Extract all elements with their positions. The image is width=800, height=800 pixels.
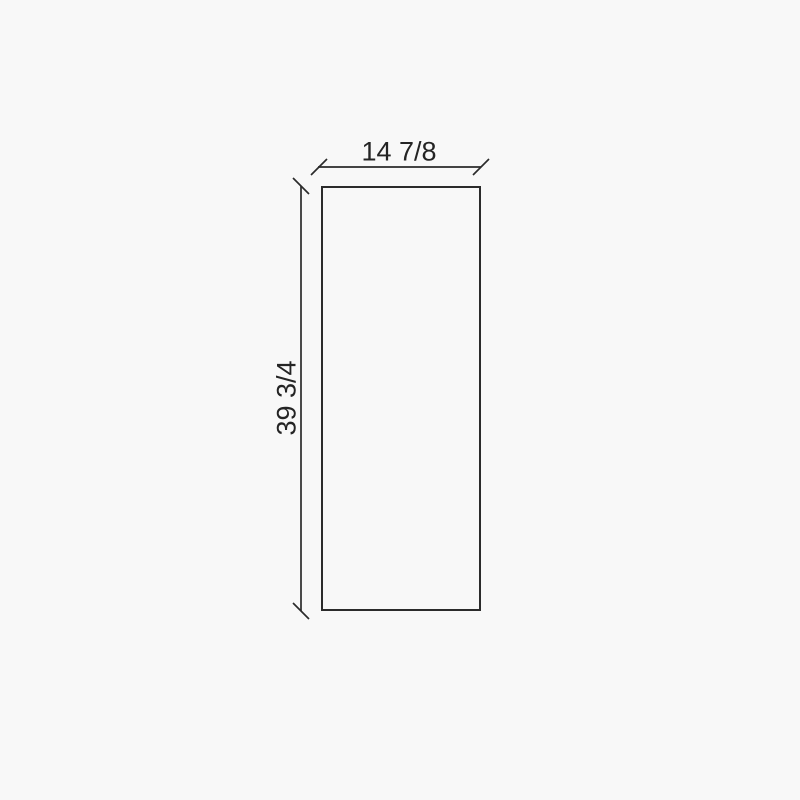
panel-outline — [322, 187, 480, 610]
dimension-drawing: 14 7/8 39 3/4 — [0, 0, 800, 800]
width-dimension-label: 14 7/8 — [361, 139, 436, 166]
drawing-svg — [0, 0, 800, 800]
height-dimension-label: 39 3/4 — [274, 360, 301, 435]
